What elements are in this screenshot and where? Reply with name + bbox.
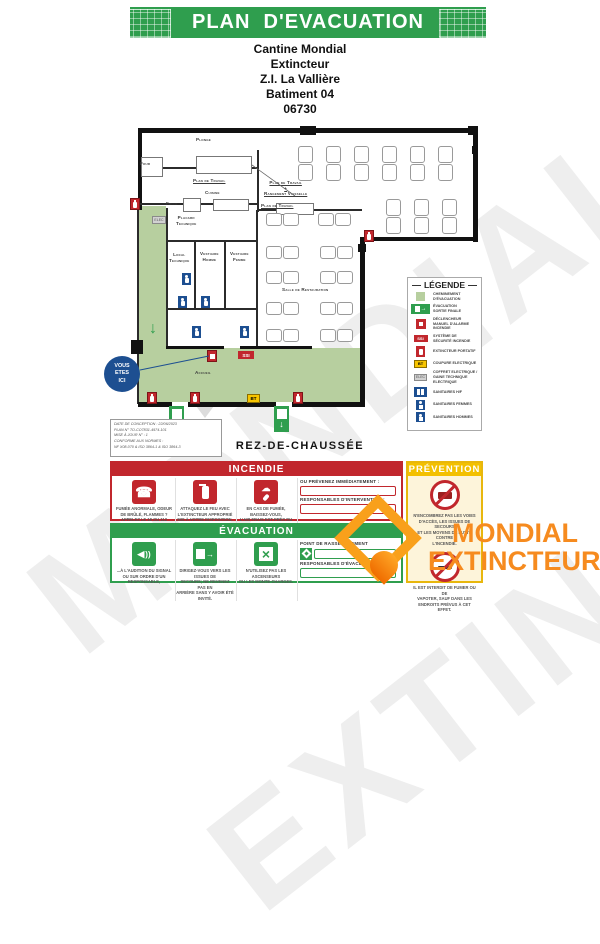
- room-label: Local Technique: [169, 252, 189, 263]
- wall: [300, 126, 316, 135]
- table: [410, 146, 425, 181]
- sanitary-icon: [182, 273, 191, 285]
- power-cut-icon: BT: [247, 394, 260, 403]
- legend-item: SANITAIRES H/F: [411, 387, 478, 397]
- legend-label: EXTINCTEUR PORTATIF: [433, 349, 475, 354]
- wall: [256, 210, 258, 348]
- legend-item: ELECCOFFRET ELECTRIQUE / GAINE TECHNIQUE…: [411, 370, 478, 384]
- wall: [166, 208, 168, 348]
- sanitary-icon: [192, 326, 201, 338]
- table: [320, 329, 353, 342]
- sanitary-icon: [240, 326, 249, 338]
- room-label: Frigo: [166, 201, 177, 207]
- wall: [188, 402, 276, 407]
- ssi-icon: SSI: [238, 351, 254, 359]
- wall: [360, 237, 365, 407]
- smoke-icon: [254, 480, 278, 504]
- nosmoke-icon: [430, 552, 460, 582]
- room-label: Vestiaire Femme: [230, 251, 249, 262]
- legend-item: SANITAIRES HOMMES: [411, 412, 478, 422]
- legend-label: COFFRET ELECTRIQUE / GAINE TECHNIQUE ELE…: [433, 370, 477, 384]
- plan-info-box: DATE DE CONCEPTION : 22/06/2023PLAN N° T…: [110, 419, 222, 457]
- legend-label: COUPURE ELECTRIQUE: [433, 361, 476, 366]
- elec-legend-icon: ELEC: [414, 374, 427, 381]
- wall: [166, 308, 258, 310]
- room-label: Cuisine: [205, 190, 220, 196]
- wall: [131, 340, 143, 354]
- table: [320, 302, 353, 315]
- wcf-legend-icon: [416, 400, 425, 410]
- incendie-panel: INCENDIE FUMÉE ANORMALE, ODEUR DE BRÛLÉ,…: [110, 461, 403, 521]
- panel-fields: OU PRÉVENEZ IMMÉDIATEMENT :RESPONSABLES …: [297, 478, 398, 528]
- extinguisher-icon: [364, 230, 374, 242]
- input-box: [300, 504, 396, 514]
- extinguisher-icon: [293, 392, 303, 404]
- panel-item: N'ENCOMBREZ PAS LES VOIES D'ACCÈS, LES I…: [408, 476, 481, 548]
- field-label: RESPONSABLES D'INTERVENTION :: [300, 497, 396, 502]
- table: [326, 146, 341, 181]
- room-label: Plan de Travail: [193, 178, 225, 184]
- wall: [360, 237, 478, 241]
- panel-item: DIRIGEZ-VOUS VERS LES ISSUES DE SECOURS;…: [175, 540, 234, 601]
- exit-sign-icon: [274, 406, 289, 432]
- notruck-icon: [430, 480, 460, 510]
- legend-label: SANITAIRES H/F: [433, 390, 462, 395]
- extinguisher-icon: [190, 392, 200, 404]
- sanitary-icon: [178, 296, 187, 308]
- extb-icon: [193, 480, 217, 504]
- legend-item: CHEMINEMENT D'ÉVACUATION: [411, 292, 478, 302]
- table: [266, 246, 299, 259]
- panel-item: ATTAQUEZ LE FEU AVEC L'EXTINCTEUR APPROP…: [175, 478, 234, 528]
- table: [320, 271, 353, 284]
- legend-label: SANITAIRES FEMMES: [433, 402, 472, 407]
- table: [320, 246, 353, 259]
- field-label: POINT DE RASSEMBLEMENT: [300, 541, 396, 546]
- table: [318, 213, 351, 226]
- prevention-header: PRÉVENTION: [408, 463, 481, 476]
- panel-caption: ATTAQUEZ LE FEU AVEC L'EXTINCTEUR APPROP…: [177, 506, 232, 523]
- evacuation-plan-page: MONDIAL EXTINCTEUR PLAN D'EVACUATION Can…: [0, 0, 600, 600]
- room-label: Plonge: [196, 137, 211, 143]
- room-label: Vestiaire Homme: [200, 251, 219, 262]
- table: [298, 146, 313, 181]
- panel-item: ...À L'AUDITION DU SIGNAL OU SUR ORDRE D…: [115, 540, 173, 601]
- room-label: Placard Technique: [176, 215, 196, 226]
- sound-icon: [132, 542, 156, 566]
- panel-item: FUMÉE ANORMALE, ODEUR DE BRÛLÉ, FLAMMES …: [115, 478, 173, 528]
- info-line: NF X08-070 & ISO 3864-1 & ISO 3864-3: [114, 445, 218, 451]
- phone-icon: [132, 480, 156, 504]
- alarm-legend-icon: [416, 319, 426, 329]
- room-label: Salle de Restauration: [282, 287, 328, 293]
- legend-item: EXTINCTEUR PORTATIF: [411, 346, 478, 357]
- prevention-panel: PRÉVENTION N'ENCOMBREZ PAS LES VOIES D'A…: [406, 461, 483, 583]
- electrical-cabinet-icon: ELEC: [152, 216, 166, 224]
- extinguisher-icon: [147, 392, 157, 404]
- legend-label: ÉVACUATION SORTIE FINALE: [433, 304, 461, 314]
- wall: [166, 240, 258, 242]
- you-are-here-badge: VOUS ETES ICI: [104, 356, 140, 392]
- wall: [240, 346, 312, 349]
- wall: [224, 240, 226, 310]
- legend-item: ÉVACUATION SORTIE FINALE: [411, 304, 478, 314]
- extinguisher-icon: [130, 198, 140, 210]
- wall: [472, 146, 478, 154]
- wall: [468, 126, 478, 135]
- table: [386, 199, 401, 234]
- noelev-icon: [254, 542, 278, 566]
- wchf-legend-icon: [414, 387, 427, 397]
- counter-box: [183, 198, 201, 212]
- input-box: [300, 486, 396, 496]
- panel-fields: POINT DE RASSEMBLEMENTRESPONSABLES D'ÉVA…: [297, 540, 398, 601]
- room-label: Plan de Travail + Rangement Vaisselle: [264, 180, 307, 197]
- evacuation-path: [138, 206, 166, 404]
- legend-label: SANITAIRES HOMMES: [433, 415, 473, 420]
- table: [266, 213, 299, 226]
- panel-caption: DIRIGEZ-VOUS VERS LES ISSUES DE SECOURS;…: [176, 568, 234, 601]
- ssi-legend-icon: SSI: [414, 335, 428, 342]
- panel-caption: IL EST INTERDIT DE FUMER OU DE VAPOTER, …: [411, 585, 478, 613]
- sanitary-icon: [201, 296, 210, 308]
- legend-item: SSISYSTÈME DE SÉCURITÉ INCENDIE: [411, 334, 478, 344]
- legend-label: SYSTÈME DE SÉCURITÉ INCENDIE: [433, 334, 470, 344]
- door-swing: [196, 406, 214, 418]
- legend: LÉGENDE CHEMINEMENT D'ÉVACUATIONÉVACUATI…: [407, 277, 482, 431]
- room-label: Four: [140, 161, 150, 167]
- wall: [194, 240, 196, 310]
- fire-alarm-icon: [207, 350, 217, 362]
- input-box: [314, 549, 396, 559]
- bt-legend-icon: BT: [414, 360, 427, 368]
- evacuation-arrow-icon: ↓: [149, 320, 157, 338]
- table: [438, 146, 453, 181]
- counter-box: [213, 199, 249, 211]
- ext-legend-icon: [416, 346, 425, 357]
- table: [266, 329, 299, 342]
- exith-legend-icon: [411, 304, 430, 314]
- wall: [358, 244, 366, 252]
- legend-item: BTCOUPURE ELECTRIQUE: [411, 360, 478, 368]
- assembly-point-icon: [300, 548, 312, 560]
- evacuation-panel: ÉVACUATION ...À L'AUDITION DU SIGNAL OU …: [110, 523, 403, 583]
- room-label: Plan de Travail: [261, 203, 293, 209]
- legend-item: SANITAIRES FEMMES: [411, 400, 478, 410]
- table: [266, 302, 299, 315]
- panel-item: EN CAS DE FUMÉE, BAISSEZ-VOUS, L'AIR FRA…: [236, 478, 295, 528]
- field-label: RESPONSABLES D'ÉVACUATION :: [300, 561, 396, 566]
- counter-box: [141, 157, 163, 177]
- table: [442, 199, 457, 234]
- incendie-header: INCENDIE: [112, 463, 401, 476]
- field-label: OU PRÉVENEZ IMMÉDIATEMENT :: [300, 479, 396, 484]
- table: [414, 199, 429, 234]
- panel-caption: ...À L'AUDITION DU SIGNAL OU SUR ORDRE D…: [117, 568, 171, 585]
- evacuation-header: ÉVACUATION: [112, 525, 401, 538]
- path-legend-icon: [416, 292, 425, 301]
- legend-item: DÉCLENCHEUR MANUEL D'ALARME INCENDIE: [411, 317, 478, 331]
- input-box: [300, 568, 396, 578]
- legend-label: CHEMINEMENT D'ÉVACUATION: [433, 292, 460, 302]
- panel-caption: N'UTILISEZ PAS LES ASCENSEURS OU LES MON…: [237, 568, 295, 585]
- panel-caption: FUMÉE ANORMALE, ODEUR DE BRÛLÉ, FLAMMES …: [116, 506, 172, 523]
- exit-icon: [193, 542, 217, 566]
- panel-item: N'UTILISEZ PAS LES ASCENSEURS OU LES MON…: [236, 540, 295, 601]
- panel-caption: N'ENCOMBREZ PAS LES VOIES D'ACCÈS, LES I…: [411, 513, 478, 546]
- table: [382, 146, 397, 181]
- legend-title: LÉGENDE: [411, 280, 478, 290]
- legend-label: DÉCLENCHEUR MANUEL D'ALARME INCENDIE: [433, 317, 469, 331]
- panel-item: IL EST INTERDIT DE FUMER OU DE VAPOTER, …: [408, 548, 481, 615]
- table: [266, 271, 299, 284]
- wall: [166, 346, 224, 349]
- counter-box: [196, 156, 252, 174]
- wch-legend-icon: [416, 412, 425, 422]
- room-label: Accueil: [195, 370, 211, 376]
- table: [354, 146, 369, 181]
